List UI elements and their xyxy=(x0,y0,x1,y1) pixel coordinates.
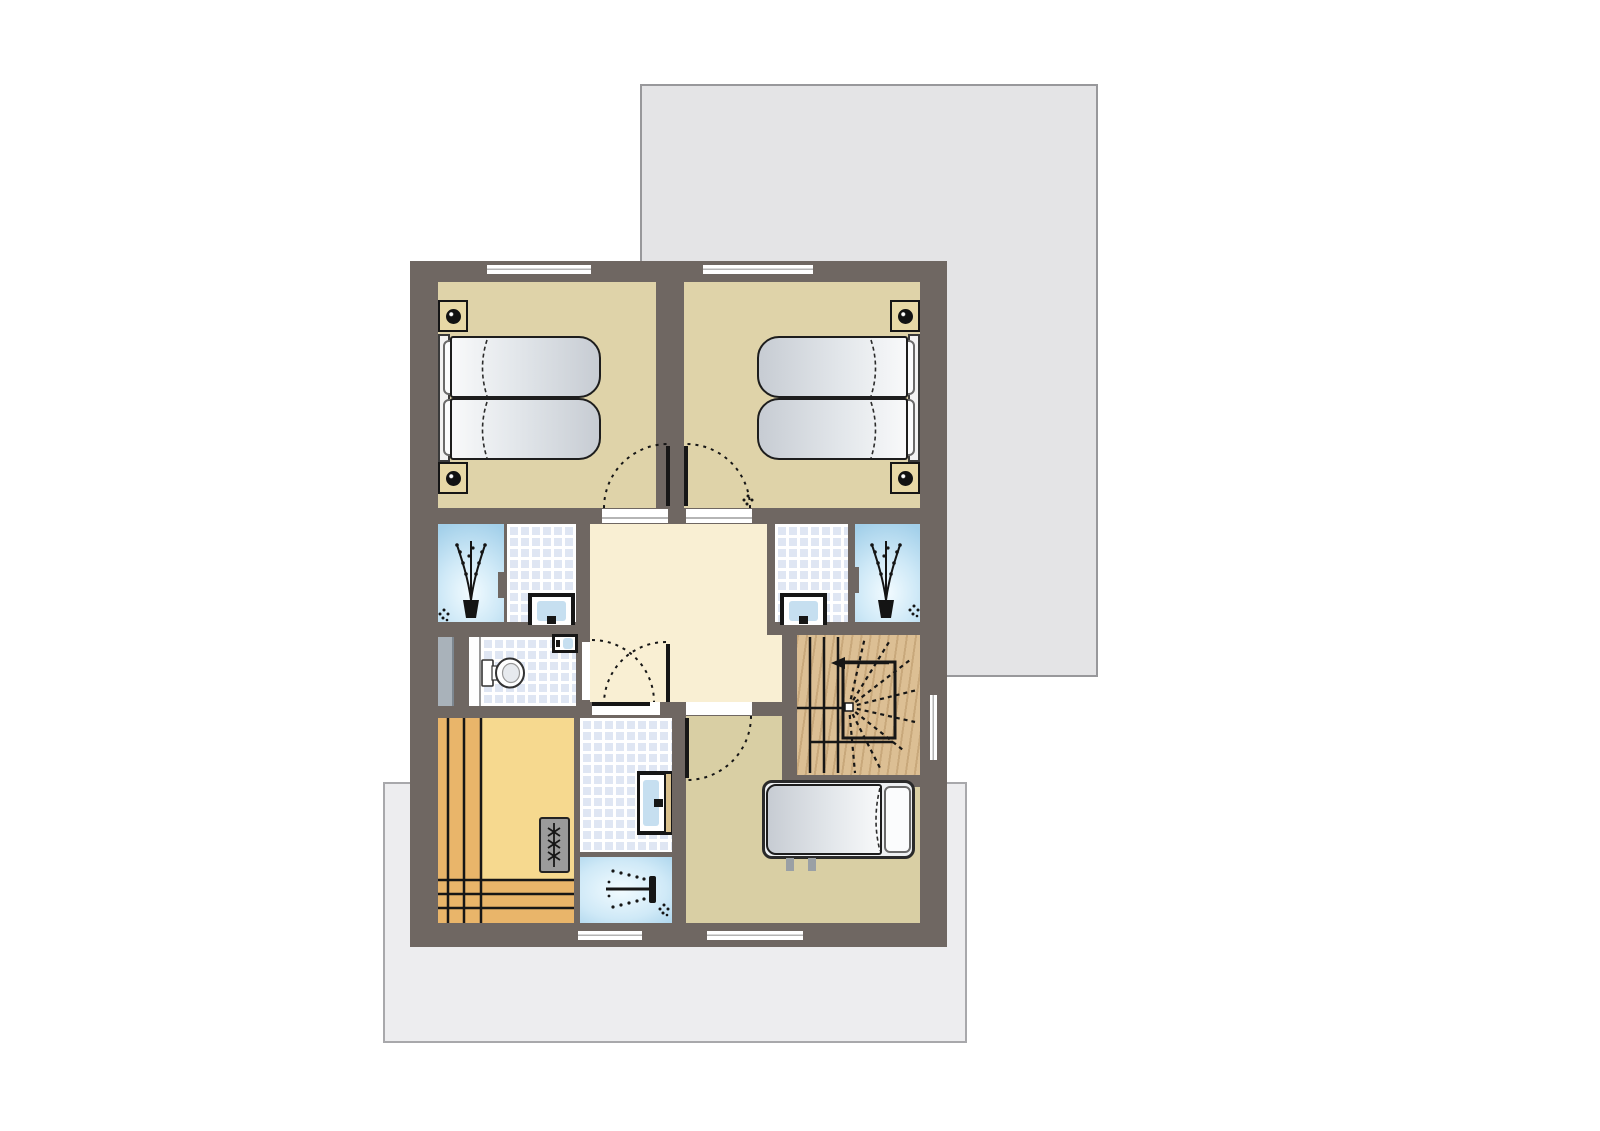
door-swing-arcs xyxy=(592,444,751,780)
door-swing-arc xyxy=(687,716,751,780)
staircase-winders xyxy=(849,637,917,773)
door-leaves xyxy=(592,446,687,778)
toilet-icon xyxy=(482,659,524,688)
floor-plan-canvas xyxy=(0,0,1600,1131)
shower-head-icon xyxy=(606,869,656,908)
door-swing-arc xyxy=(592,640,654,702)
plant-icon xyxy=(455,541,487,618)
plant-icon xyxy=(870,541,902,618)
stair-direction-arrow xyxy=(831,657,889,711)
mattress-creases xyxy=(483,340,881,851)
sauna-heater-stones xyxy=(548,823,560,867)
plan-detail-overlay xyxy=(0,0,1600,1131)
door-swing-arc xyxy=(604,642,666,704)
sauna-bench-lines xyxy=(438,718,574,923)
door-swing-arc xyxy=(604,444,668,508)
door-swing-arc xyxy=(686,444,750,508)
